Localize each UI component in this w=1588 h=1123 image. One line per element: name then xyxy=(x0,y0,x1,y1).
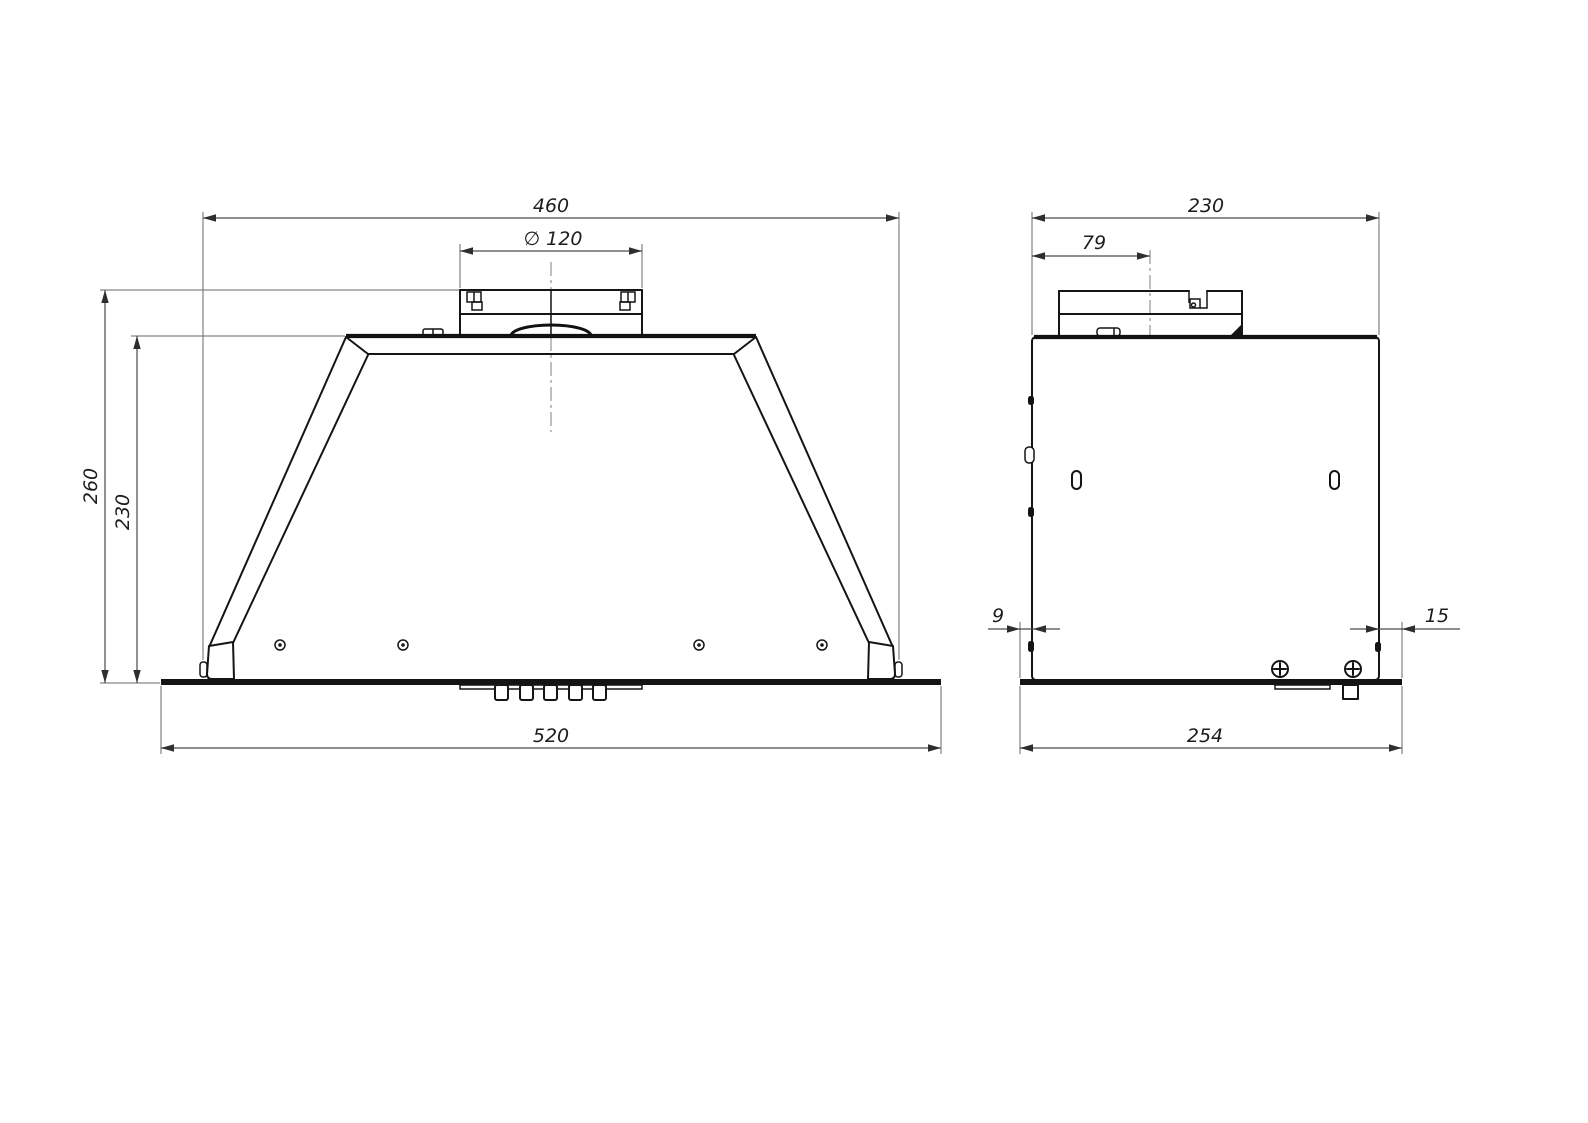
dim-label-overall-height: 260 xyxy=(80,468,102,504)
front-edge-lug xyxy=(1375,642,1381,652)
dim-label-front-gap: 15 xyxy=(1425,605,1449,627)
technical-drawing: 460 ∅ 120 260 230 520 xyxy=(0,0,1588,1123)
duct-clip-left xyxy=(467,292,482,310)
front-view: 460 ∅ 120 260 230 520 xyxy=(80,195,941,754)
dim-label-body-height: 230 xyxy=(112,494,134,530)
rear-lug-3 xyxy=(1028,507,1034,517)
duct-clip-right xyxy=(620,292,635,310)
filter-screws xyxy=(275,640,827,650)
dim-label-body-width: 460 xyxy=(533,195,569,217)
front-foot-left xyxy=(200,642,234,679)
side-screw-2 xyxy=(1345,661,1361,677)
drawing-canvas: 460 ∅ 120 260 230 520 xyxy=(0,0,1588,1123)
rear-lug-4 xyxy=(1028,641,1034,652)
front-duct-connector xyxy=(460,290,642,336)
dim-label-duct-diameter: ∅ 120 xyxy=(524,228,583,250)
side-screw-1 xyxy=(1272,661,1288,677)
rear-lug-1 xyxy=(1028,396,1034,405)
side-bottom-tab xyxy=(1343,685,1358,699)
side-body xyxy=(1025,337,1381,680)
dim-label-body-depth: 230 xyxy=(1188,195,1224,217)
dim-label-panel-depth: 254 xyxy=(1187,725,1223,747)
dim-label-duct-offset: 79 xyxy=(1082,232,1106,254)
dim-label-rear-gap: 9 xyxy=(992,605,1004,627)
side-button-strip xyxy=(1275,685,1330,689)
front-foot-right xyxy=(868,642,902,679)
side-view: 230 79 9 15 254 xyxy=(988,195,1460,754)
dim-label-panel-width: 520 xyxy=(533,725,569,747)
rear-lug-2 xyxy=(1025,447,1034,463)
